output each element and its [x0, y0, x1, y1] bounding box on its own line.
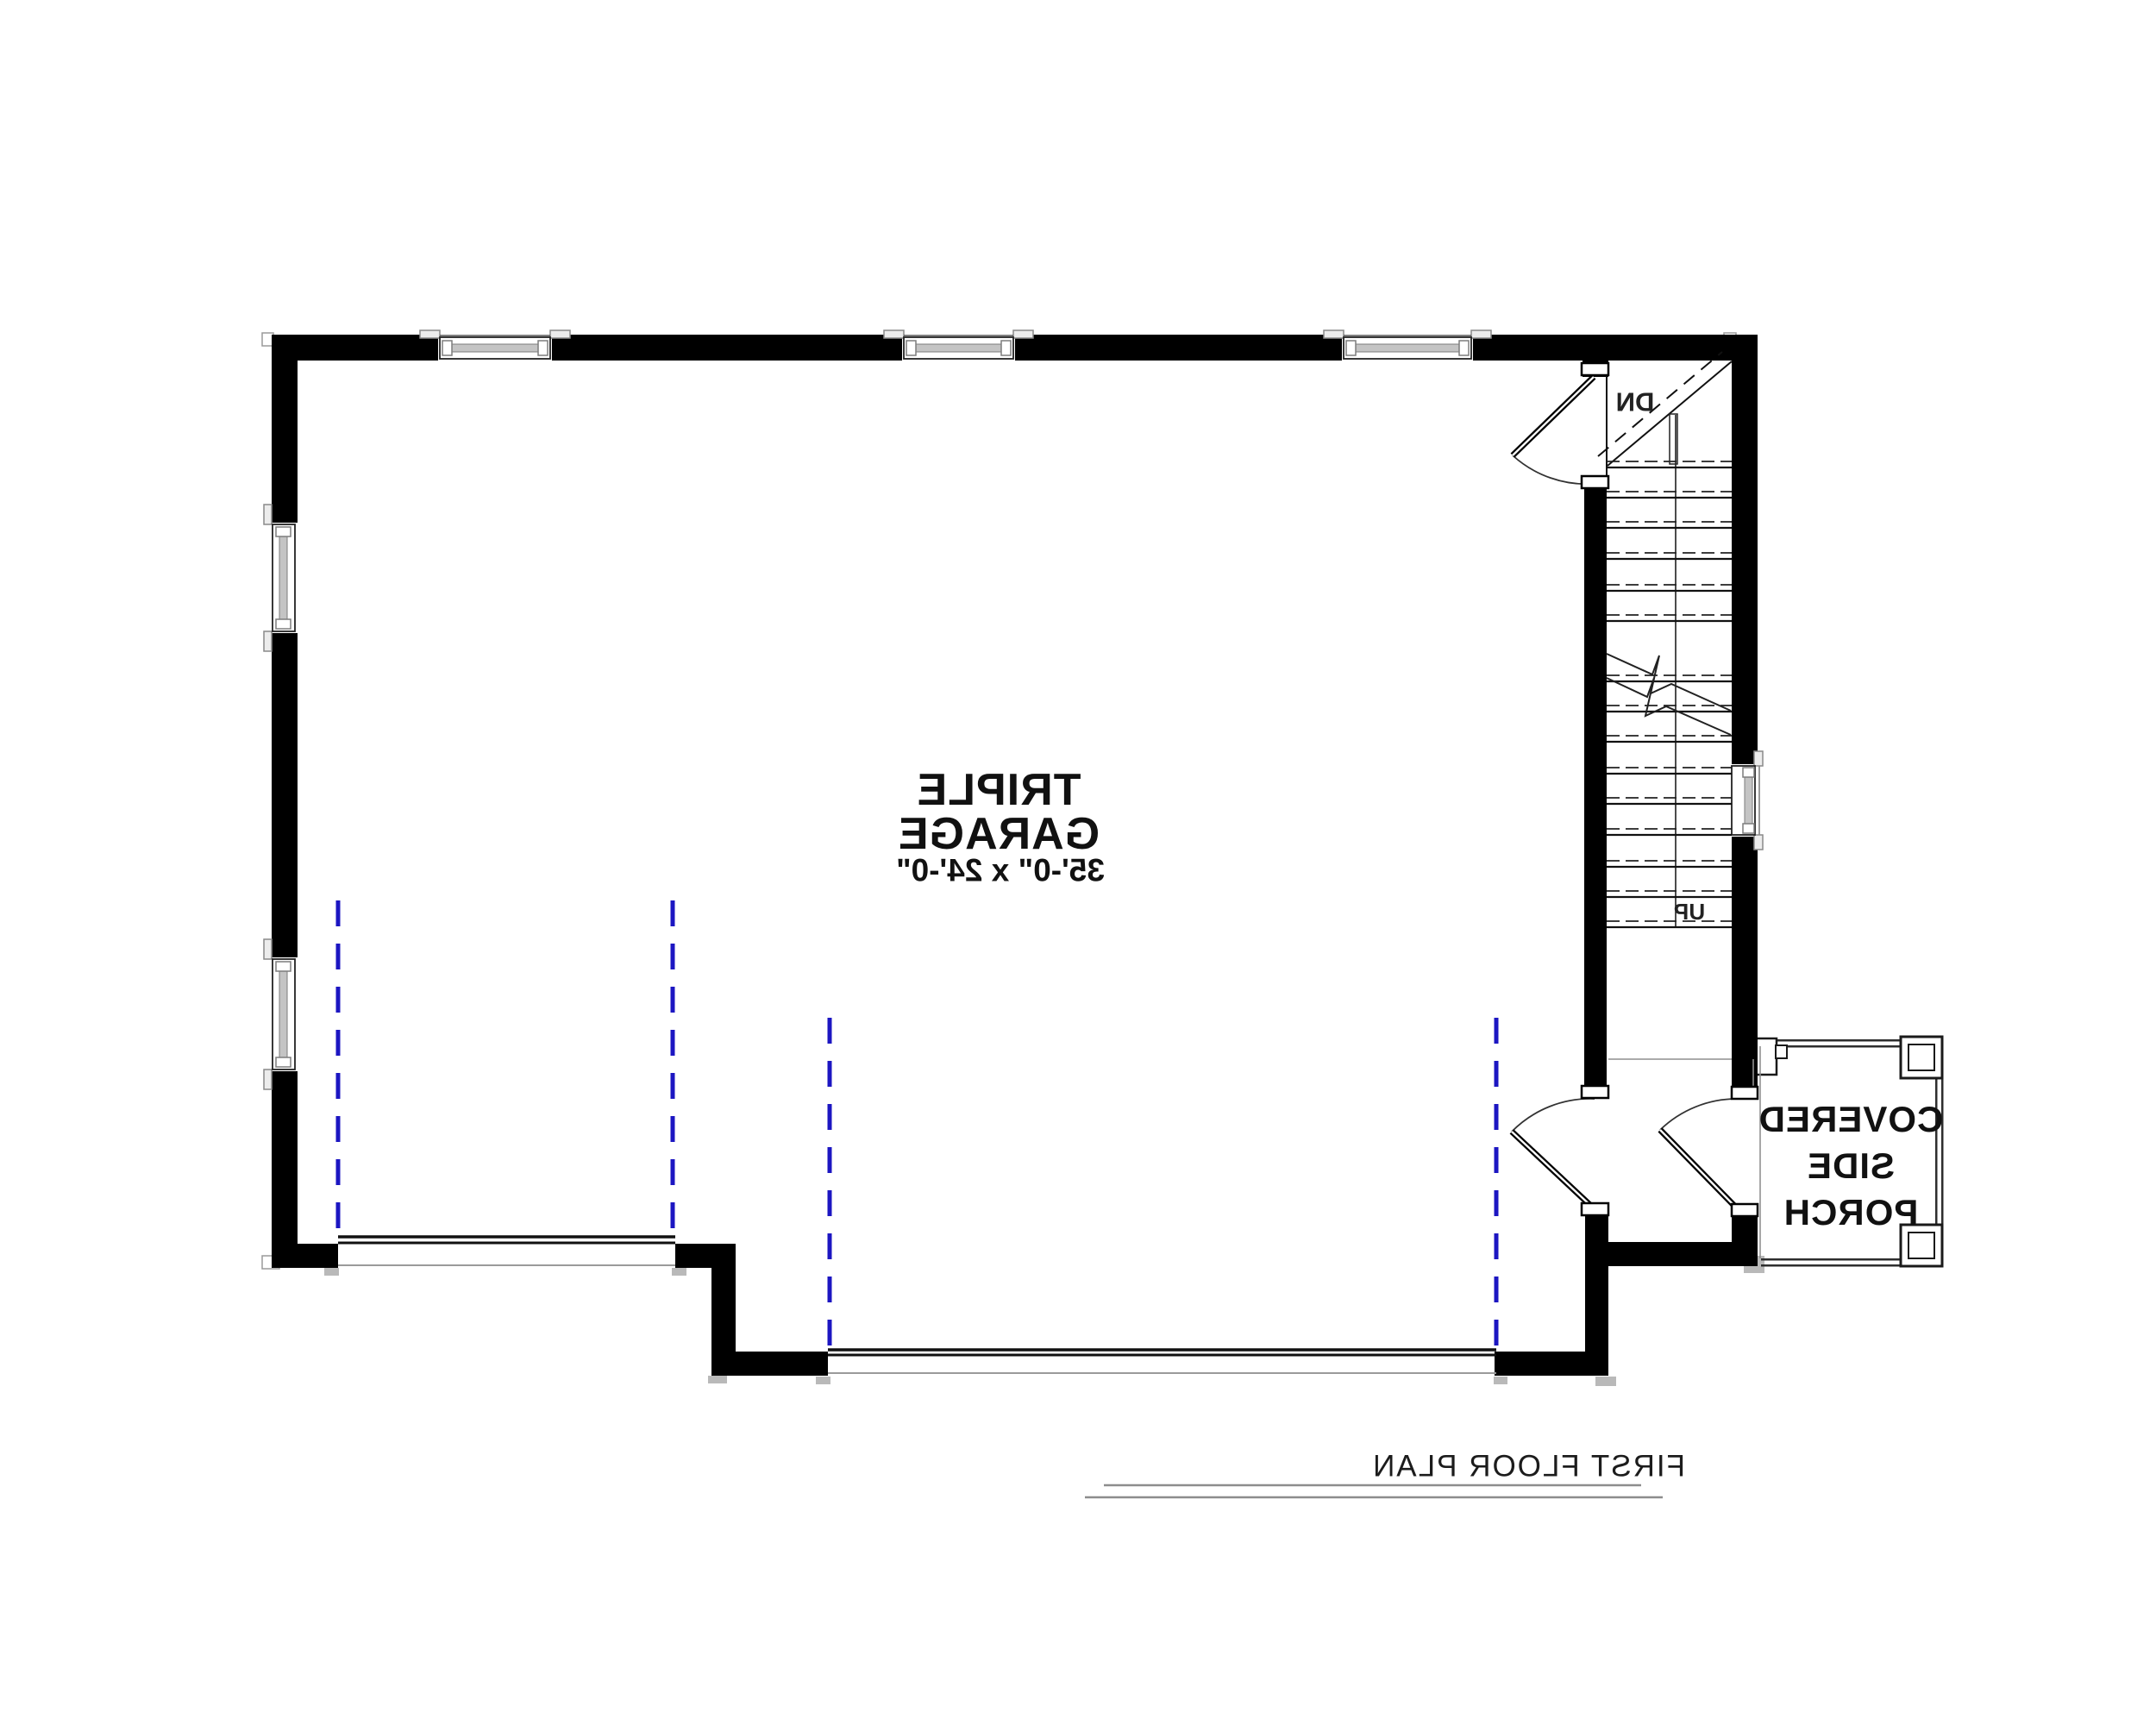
door-jamb-pad — [1732, 1087, 1758, 1099]
window-sash — [915, 344, 1002, 352]
window-jamb-block — [442, 341, 452, 355]
window-jamb-block — [1743, 768, 1754, 777]
window-trim-cap — [550, 330, 570, 338]
door-swing-arc — [1660, 1099, 1738, 1130]
window-sash — [1355, 344, 1460, 352]
window-trim-cap — [264, 505, 272, 524]
garage-dimensions: 35'-0" x 24'-0" — [896, 855, 1105, 887]
window-jamb-block — [906, 341, 916, 355]
window-trim-cap — [1013, 330, 1033, 338]
window-trim-cap — [1754, 751, 1763, 766]
wall-left — [272, 1069, 298, 1268]
floor-plan: TRIPLE GARAGE 35'-0" x 24'-0" COVERED SI… — [0, 0, 2156, 1725]
porch-door-opening — [1728, 1097, 1761, 1207]
window-trim-cap — [1471, 330, 1491, 338]
window-trim-cap — [264, 1069, 272, 1089]
door-jamb-pad — [1732, 1204, 1758, 1216]
footing-pad — [1595, 1377, 1616, 1386]
window-jamb-block — [538, 341, 548, 355]
door-swing-arc — [1512, 1099, 1595, 1132]
wall-bottom — [711, 1352, 828, 1376]
window-jamb-block — [1346, 341, 1356, 355]
window-jamb-block — [1743, 824, 1754, 833]
wall-bottom-left — [272, 1244, 338, 1268]
door-jamb-pad — [1582, 363, 1608, 375]
window-trim-cap — [884, 330, 904, 338]
porch-beam-line — [1776, 1045, 1902, 1048]
wall-left — [272, 631, 298, 959]
drawing-title: FIRST FLOOR PLAN — [1371, 1452, 1685, 1482]
porch-label-line1: COVERED — [1758, 1101, 1944, 1138]
window-jamb-block — [276, 1057, 291, 1067]
window-trim-cap — [264, 631, 272, 651]
porch-post — [1908, 1233, 1934, 1258]
garage-label-line2: GARAGE — [898, 812, 1100, 856]
window-jamb-block — [276, 962, 291, 971]
wall-vestibule — [1585, 1207, 1608, 1376]
footing-pad — [816, 1377, 830, 1384]
porch-post — [1776, 1045, 1787, 1058]
porch-beam-line — [1761, 1258, 1902, 1261]
footing-pad — [324, 1268, 339, 1276]
door-leaf-core — [1513, 377, 1594, 455]
door-jamb-pad — [1582, 476, 1608, 488]
window-sash — [1745, 776, 1752, 825]
wall-stair-left — [1584, 481, 1607, 1097]
porch-beam-line — [1776, 1039, 1902, 1042]
door-jamb-pad — [1582, 1203, 1608, 1215]
wall-left — [272, 335, 298, 524]
footing-pad — [708, 1376, 727, 1383]
stair-break-line — [1607, 678, 1731, 735]
window-sash — [279, 536, 287, 620]
footing-pad — [672, 1268, 686, 1276]
porch-label-line2: SIDE — [1807, 1148, 1895, 1184]
window-jamb-block — [276, 619, 291, 629]
garage-label-line1: TRIPLE — [917, 768, 1081, 812]
door-jamb-pad — [1582, 1086, 1608, 1098]
window-trim-cap — [1754, 835, 1763, 850]
window-sash — [451, 344, 539, 352]
window-jamb-block — [276, 527, 291, 536]
window-trim-cap — [264, 939, 272, 959]
window-jamb-block — [1459, 341, 1469, 355]
door-leaf-core — [1512, 1132, 1595, 1209]
footing-pad — [1494, 1377, 1507, 1384]
porch-post — [1756, 1038, 1777, 1075]
door-leaf-core — [1660, 1130, 1738, 1209]
stair-down-label: DN — [1616, 389, 1655, 416]
window-sash — [279, 970, 287, 1058]
porch-label-line3: PORCH — [1783, 1195, 1919, 1231]
porch-beam-line — [1761, 1264, 1902, 1267]
window-trim-cap — [420, 330, 440, 338]
window-jamb-block — [1001, 341, 1011, 355]
window-trim-cap — [1324, 330, 1344, 338]
porch-post — [1908, 1044, 1934, 1070]
stair-up-label: UP — [1674, 900, 1705, 923]
